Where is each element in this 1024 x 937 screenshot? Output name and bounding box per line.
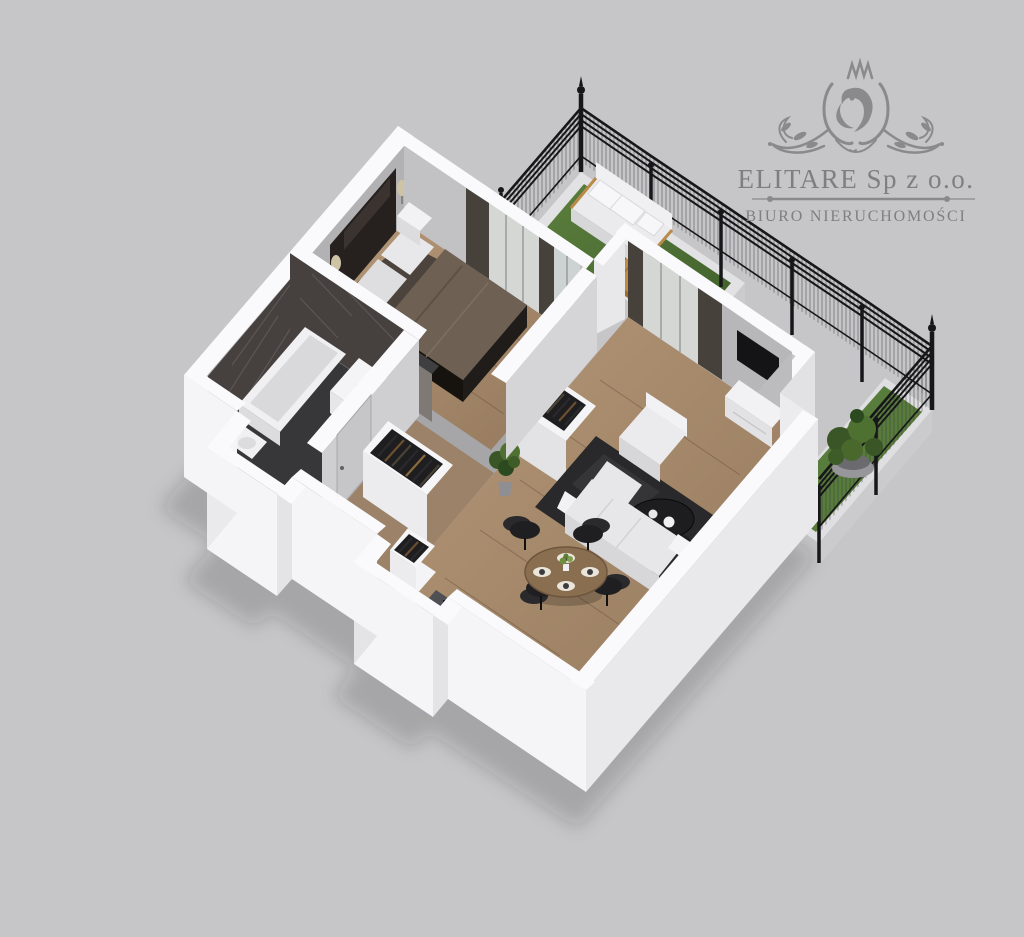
floorplan-render-stage: ELITARE Sp z o.o. BIURO NIERUCHOMOŚCI <box>0 0 1024 937</box>
curtains <box>628 241 643 327</box>
logo-company: ELITARE Sp z o.o. <box>737 164 974 194</box>
floorplan-render: ELITARE Sp z o.o. BIURO NIERUCHOMOŚCI <box>0 0 1024 937</box>
round-dining-table <box>525 547 607 597</box>
curtains <box>698 288 722 380</box>
logo-tagline: BIURO NIERUCHOMOŚCI <box>745 206 966 225</box>
plate <box>649 510 658 519</box>
door-handle <box>340 466 344 470</box>
plate <box>664 517 675 528</box>
curtains <box>466 188 489 279</box>
